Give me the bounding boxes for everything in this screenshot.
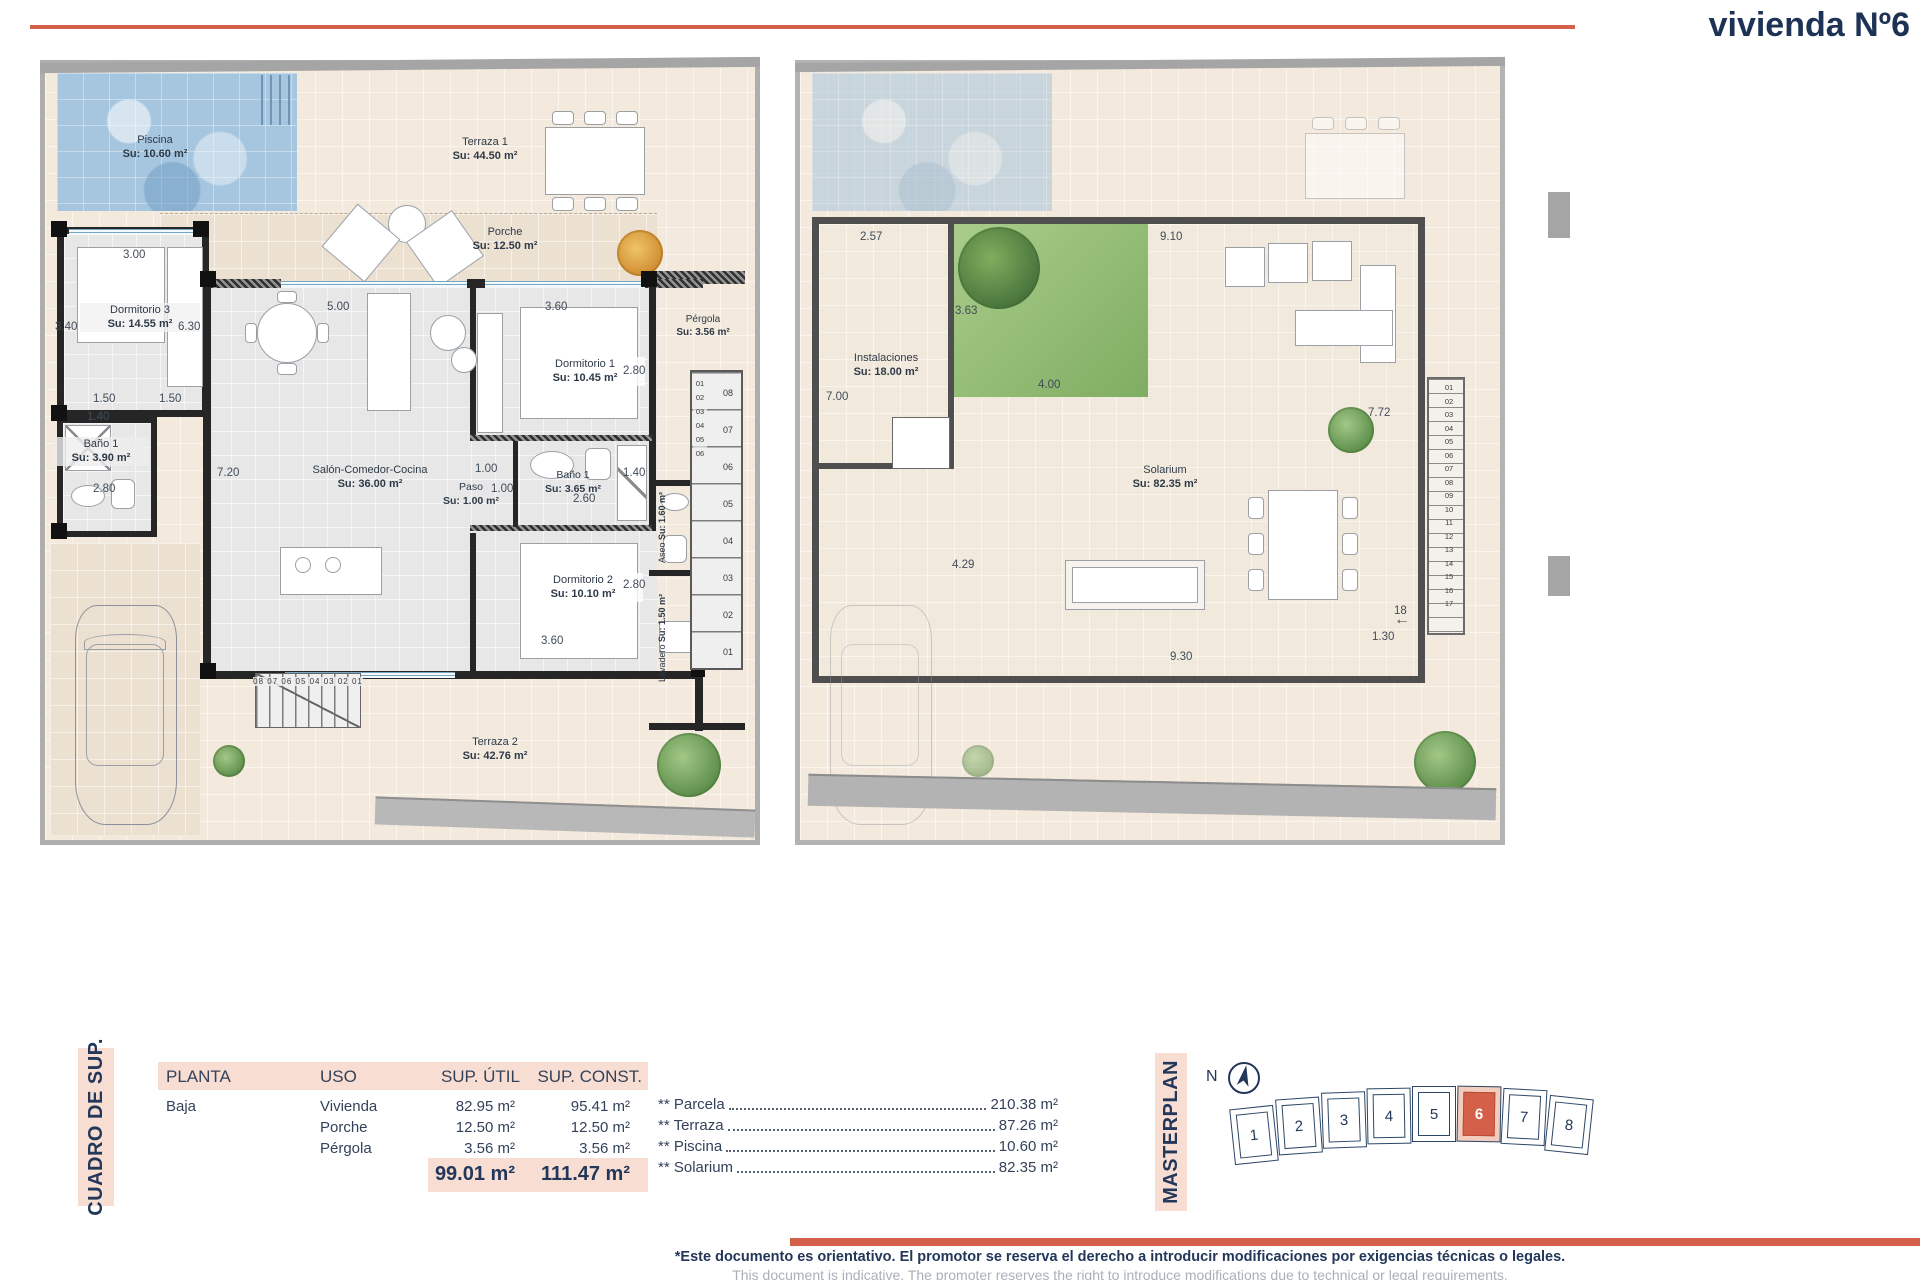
col-header-uso: USO <box>320 1067 357 1087</box>
chair <box>1248 497 1264 519</box>
dimension: 3.60 <box>541 635 563 647</box>
masterplan-unit-6-highlighted: 6 <box>1457 1086 1502 1143</box>
window <box>281 281 467 287</box>
masterplan-unit-5: 5 <box>1412 1086 1456 1142</box>
room-label-piscina: Piscina Su: 10.60 m² <box>100 133 210 162</box>
room-label-terraza1: Terraza 1 Su: 44.50 m² <box>420 135 550 164</box>
dimension: 2.60 <box>573 493 595 505</box>
wardrobe <box>477 313 503 433</box>
room-label-solarium: Solarium Su: 82.35 m² <box>1100 463 1230 492</box>
header-accent-line <box>30 25 1575 29</box>
pouf <box>430 315 466 351</box>
dimension: 1.40 <box>623 467 645 479</box>
sidewalk <box>375 796 756 837</box>
dimension: 9.30 <box>1170 651 1192 663</box>
pillar <box>200 663 216 679</box>
dimension: 1.00 <box>491 483 513 495</box>
pillar <box>193 221 209 237</box>
masterplan-unit-2: 2 <box>1275 1097 1323 1156</box>
surface-table-band: CUADRO DE SUP. <box>78 1048 114 1206</box>
dotted-leader <box>737 1171 995 1173</box>
dimension: 9.10 <box>1160 231 1182 243</box>
chair <box>1378 117 1400 130</box>
masterplan-unit-1: 1 <box>1229 1105 1279 1165</box>
dimension: 5.00 <box>327 301 349 313</box>
dimension: 18 <box>1394 605 1407 617</box>
dotted-leader <box>728 1129 995 1131</box>
cell-uso: Vivienda <box>320 1098 377 1115</box>
dimension: 1.00 <box>475 463 497 475</box>
parcel-wall-top <box>40 57 760 73</box>
surface-table-title: CUADRO DE SUP. <box>85 1038 108 1216</box>
dimension: 1.30 <box>1372 631 1394 643</box>
cell-util: 12.50 m² <box>430 1119 515 1136</box>
plan-sheet: vivienda Nº6 Piscina Su: 10.60 m² Terraz… <box>0 0 1920 1280</box>
tree <box>657 733 721 797</box>
window <box>485 281 647 287</box>
round-table <box>257 303 317 363</box>
dimension: 6.30 <box>178 321 200 333</box>
dimension: 1.50 <box>93 393 115 405</box>
room-label-lavadero: Lavadero Su: 1.50 m² <box>657 583 677 693</box>
cell-const: 3.56 m² <box>532 1140 630 1157</box>
disclaimer-en: This document is indicative. The promote… <box>640 1267 1600 1280</box>
pillar <box>641 271 657 287</box>
chair <box>616 111 638 125</box>
room-label-bano1-izq: Baño 1 Su: 3.90 m² <box>53 437 149 466</box>
cell-const: 12.50 m² <box>532 1119 630 1136</box>
chair <box>1312 117 1334 130</box>
chair <box>277 291 297 303</box>
chair <box>584 197 606 211</box>
masterplan-unit-3: 3 <box>1321 1091 1367 1149</box>
chair <box>616 197 638 211</box>
orange-tree <box>617 230 663 276</box>
masterplan-unit-7: 7 <box>1501 1088 1548 1146</box>
cell-const: 95.41 m² <box>532 1098 630 1115</box>
wall <box>203 279 211 679</box>
total-sup-const: 111.47 m² <box>528 1163 630 1186</box>
cell-util: 82.95 m² <box>430 1098 515 1115</box>
dimension: 3.60 <box>545 301 567 313</box>
planter-bench <box>1065 560 1205 610</box>
window <box>69 229 197 235</box>
wall <box>513 441 518 527</box>
stair-numbers: 08 07 06 05 04 03 02 01 <box>253 677 363 686</box>
wall <box>470 525 652 531</box>
sink <box>295 557 311 573</box>
chair <box>1248 569 1264 591</box>
col-header-sup-const: SUP. CONST. <box>532 1067 642 1087</box>
tree <box>213 745 245 777</box>
summary-row: ** Piscina 10.60 m² <box>658 1134 1058 1155</box>
dimension: 1.40 <box>87 411 109 423</box>
chair <box>552 197 574 211</box>
col-header-sup-util: SUP. ÚTIL <box>430 1067 520 1087</box>
dimension: 7.20 <box>217 467 239 479</box>
car-roof <box>86 644 164 766</box>
summary-value: 10.60 m² <box>999 1138 1058 1155</box>
stair-numbers: 08 07 06 05 04 03 02 01 <box>717 375 739 671</box>
footer-accent-bar <box>790 1238 1920 1246</box>
chair <box>1342 497 1358 519</box>
parcel-wall-top <box>795 57 1505 72</box>
dimension: 7.72 <box>1368 407 1390 419</box>
chair <box>245 323 257 343</box>
stair-numbers: 01 02 03 04 05 06 <box>693 377 707 461</box>
cell-uso: Pérgola <box>320 1140 372 1157</box>
masterplan-title: MASTERPLAN <box>1160 1060 1183 1204</box>
summary-list: ** Parcela 210.38 m² ** Terraza 87.26 m²… <box>658 1092 1058 1176</box>
pool-ladder <box>261 75 295 125</box>
pool-below <box>812 73 1052 211</box>
lounger <box>1268 243 1308 283</box>
pillar <box>51 523 67 539</box>
pillar <box>200 271 216 287</box>
dining-table <box>545 127 645 195</box>
summary-row: ** Parcela 210.38 m² <box>658 1092 1058 1113</box>
chair <box>1345 117 1367 130</box>
dotted-leader <box>726 1150 995 1152</box>
room-label-instalaciones: Instalaciones Su: 18.00 m² <box>828 351 944 380</box>
dimension: 2.80 <box>623 365 645 377</box>
room-label-aseo: Aseo Su: 1.60 m² <box>657 485 677 569</box>
wall <box>649 723 745 730</box>
dimension: 2.57 <box>860 231 882 243</box>
dimension: 7.00 <box>826 391 848 403</box>
dining-table <box>1268 490 1338 600</box>
dimension: 3.63 <box>955 305 977 317</box>
ground-floor-plan: Piscina Su: 10.60 m² Terraza 1 Su: 44.50… <box>40 60 760 845</box>
pillar <box>51 405 67 421</box>
dimension: 2.80 <box>93 483 115 495</box>
room-label-terraza2: Terraza 2 Su: 42.76 m² <box>430 735 560 764</box>
skylight <box>892 417 950 469</box>
sofa <box>367 293 411 411</box>
lounger <box>1225 247 1265 287</box>
dimension: 3.40 <box>55 321 77 333</box>
summary-label: ** Terraza <box>658 1117 724 1134</box>
dimension: 3.00 <box>123 249 145 261</box>
room-label-salon: Salón-Comedor-Cocina Su: 36.00 m² <box>290 463 450 492</box>
chair <box>584 111 606 125</box>
sofa <box>1295 310 1393 346</box>
chair <box>1342 569 1358 591</box>
sink <box>325 557 341 573</box>
chair <box>552 111 574 125</box>
chair <box>277 363 297 375</box>
tree <box>1414 731 1476 793</box>
disclaimer-es: *Este documento es orientativo. El promo… <box>640 1249 1600 1265</box>
stair-numbers: 01 02 03 04 05 06 07 08 09 10 11 12 13 1… <box>1440 381 1458 611</box>
lounger <box>1312 241 1352 281</box>
summary-label: ** Solarium <box>658 1159 733 1176</box>
total-sup-util: 99.01 m² <box>425 1163 515 1186</box>
room-area: Su: 10.60 m² <box>100 147 210 161</box>
car <box>75 605 177 825</box>
north-label: N <box>1206 1068 1218 1086</box>
dimension: 4.00 <box>1038 379 1060 391</box>
room-label-pergola: Pérgola Su: 3.56 m² <box>653 313 753 339</box>
car-windshield <box>84 634 166 650</box>
car-roof <box>841 644 919 766</box>
solarium-floor-plan: Instalaciones Su: 18.00 m² Solarium Su: … <box>795 60 1505 845</box>
summary-row: ** Terraza 87.26 m² <box>658 1113 1058 1134</box>
chair <box>317 323 329 343</box>
cell-planta: Baja <box>166 1098 196 1115</box>
tree <box>958 227 1040 309</box>
neighbor-wall <box>1548 192 1570 238</box>
summary-label: ** Piscina <box>658 1138 722 1155</box>
cell-util: 3.56 m² <box>430 1140 515 1157</box>
dimension: 2.80 <box>623 579 645 591</box>
summary-row: ** Solarium 82.35 m² <box>658 1155 1058 1176</box>
chair <box>1342 533 1358 555</box>
summary-label: ** Parcela <box>658 1096 725 1113</box>
neighbor-wall <box>1548 556 1570 596</box>
masterplan-band: MASTERPLAN <box>1155 1053 1187 1211</box>
tree <box>962 745 994 777</box>
wall <box>470 533 476 673</box>
cell-uso: Porche <box>320 1119 368 1136</box>
dotted-leader <box>729 1108 987 1110</box>
page-title: vivienda Nº6 <box>1580 6 1910 45</box>
masterplan-unit-4: 4 <box>1367 1088 1412 1145</box>
pouf <box>451 347 477 373</box>
dimension: 1.50 <box>159 393 181 405</box>
col-header-planta: PLANTA <box>166 1067 231 1087</box>
summary-value: 210.38 m² <box>990 1096 1058 1113</box>
summary-value: 87.26 m² <box>999 1117 1058 1134</box>
dining-table-below <box>1305 133 1405 199</box>
wall <box>470 435 652 441</box>
chair <box>1248 533 1264 555</box>
room-name: Piscina <box>100 133 210 147</box>
masterplan-units: 1 2 3 4 5 6 7 8 <box>1232 1085 1632 1180</box>
masterplan-unit-8: 8 <box>1544 1095 1594 1155</box>
summary-value: 82.35 m² <box>999 1159 1058 1176</box>
room-label-porche: Porche Su: 12.50 m² <box>450 225 560 254</box>
pillar <box>51 221 67 237</box>
dimension: 4.29 <box>952 559 974 571</box>
